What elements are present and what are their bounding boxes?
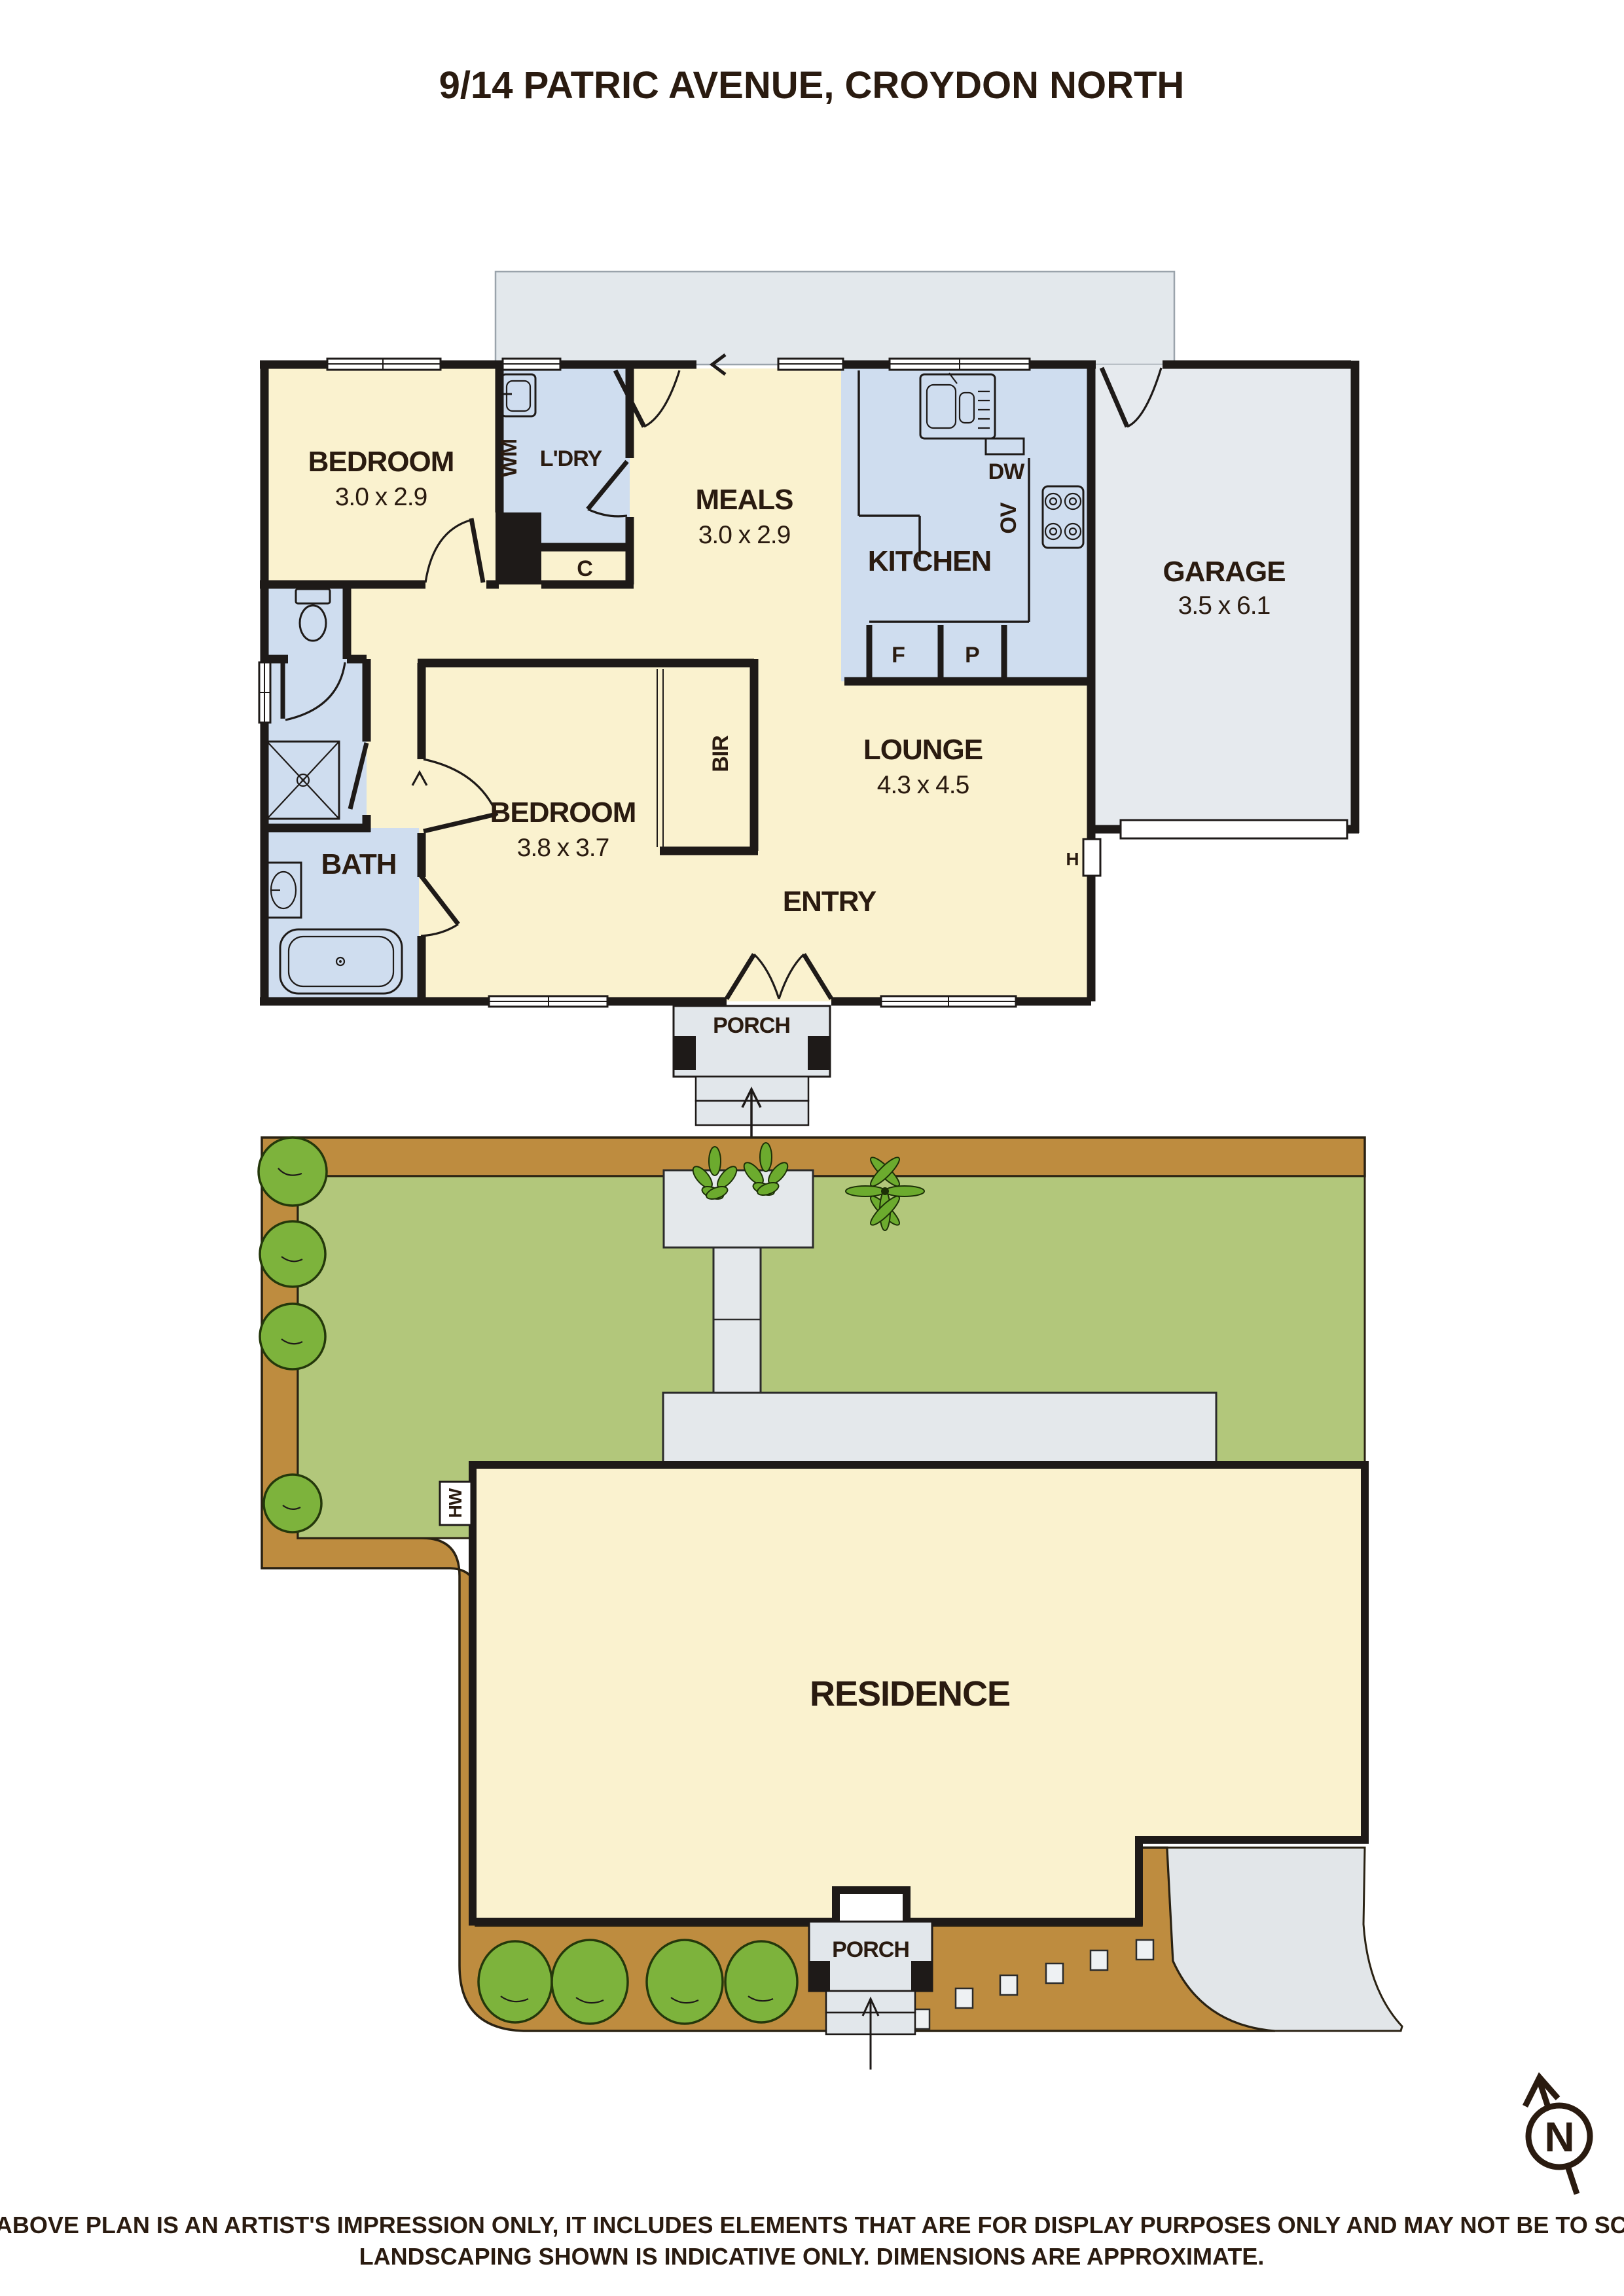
north-arrow: N [1525, 2077, 1590, 2194]
tree-icon [260, 1304, 325, 1369]
robe-label: BIR [708, 736, 733, 772]
bush-icon [647, 1940, 723, 2024]
residence-label: RESIDENCE [810, 1674, 1010, 1713]
fridge-label: F [892, 643, 905, 668]
lounge-label: LOUNGE [863, 734, 983, 766]
room-toilet [264, 584, 347, 659]
porch-siteplan: PORCH [809, 1922, 932, 2070]
floorplan-page: 9/14 PATRIC AVENUE, CROYDON NORTH [0, 0, 1624, 2296]
bath-label: BATH [321, 848, 397, 880]
page-title: 9/14 PATRIC AVENUE, CROYDON NORTH [439, 64, 1185, 107]
oven-label: OV [996, 502, 1021, 533]
roof-eave [496, 272, 1174, 365]
porch-pillar [808, 1036, 830, 1070]
site-plan: RESIDENCE HW [259, 1138, 1402, 2070]
porch-pillar [911, 1961, 932, 1991]
bush-icon [478, 1941, 552, 2022]
tree-icon [260, 1221, 325, 1287]
bedroom2-label: BEDROOM [490, 797, 636, 829]
bush-icon [552, 1940, 628, 2024]
bedroom1-dims: 3.0 x 2.9 [335, 483, 427, 511]
dishwasher-label: DW [988, 459, 1026, 484]
driveway [1167, 1848, 1402, 2031]
rear-path-slab [663, 1393, 1216, 1466]
porch-label: PORCH [713, 1013, 790, 1038]
floor-plan: H [259, 272, 1359, 1225]
entry-label: ENTRY [783, 886, 876, 918]
bush-icon [725, 1941, 797, 2022]
laundry-label: L'DRY [540, 446, 603, 471]
meals-dims: 3.0 x 2.9 [698, 521, 791, 549]
kitchen-label: KITCHEN [868, 545, 992, 577]
disclaimer-line1: THE ABOVE PLAN IS AN ARTIST'S IMPRESSION… [0, 2212, 1624, 2238]
porch-pillar [674, 1036, 696, 1070]
lounge-dims: 4.3 x 4.5 [877, 771, 969, 799]
pantry-label: P [965, 643, 979, 668]
tree-icon [259, 1138, 327, 1206]
bedroom1-label: BEDROOM [308, 446, 454, 478]
clothesline-post [713, 1247, 761, 1395]
stepping-stone [1000, 1975, 1017, 1995]
stepping-stone [956, 1988, 973, 2008]
hot-water-label: H [1066, 849, 1078, 869]
hot-water-unit [1083, 839, 1100, 876]
chimney-block [496, 512, 541, 584]
washing-machine-label: WM [497, 439, 522, 477]
stepping-stone [1136, 1940, 1153, 1960]
tree-icon [264, 1475, 321, 1532]
bedroom2-dims: 3.8 x 3.7 [517, 834, 609, 862]
hw-label: HW [445, 1488, 465, 1518]
porch-label: PORCH [832, 1937, 909, 1962]
garage-dims: 3.5 x 6.1 [1178, 592, 1271, 620]
disclaimer-line2: LANDSCAPING SHOWN IS INDICATIVE ONLY. DI… [359, 2243, 1265, 2270]
north-label: N [1544, 2113, 1574, 2161]
stepping-stone [1091, 1950, 1108, 1970]
cupboard-label: C [577, 556, 592, 581]
stepping-stone [1046, 1964, 1063, 1983]
garage-label: GARAGE [1163, 556, 1285, 588]
porch-pillar [809, 1961, 830, 1991]
meals-label: MEALS [696, 484, 793, 516]
garage-panel-door [1121, 820, 1347, 838]
clothesline-head [664, 1170, 813, 1247]
